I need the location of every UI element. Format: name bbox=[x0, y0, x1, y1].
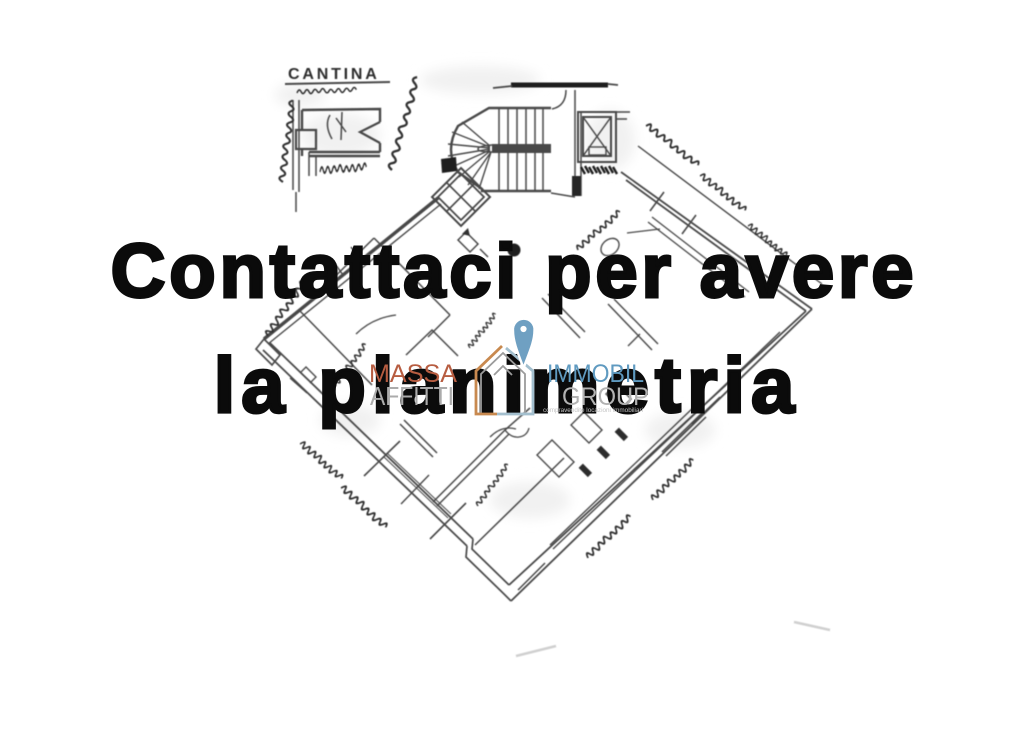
svg-text:compravendite locazioni immobi: compravendite locazioni immobiliari bbox=[543, 408, 643, 414]
svg-text:AFFITTI: AFFITTI bbox=[370, 381, 454, 411]
svg-text:GROUP: GROUP bbox=[562, 383, 649, 411]
